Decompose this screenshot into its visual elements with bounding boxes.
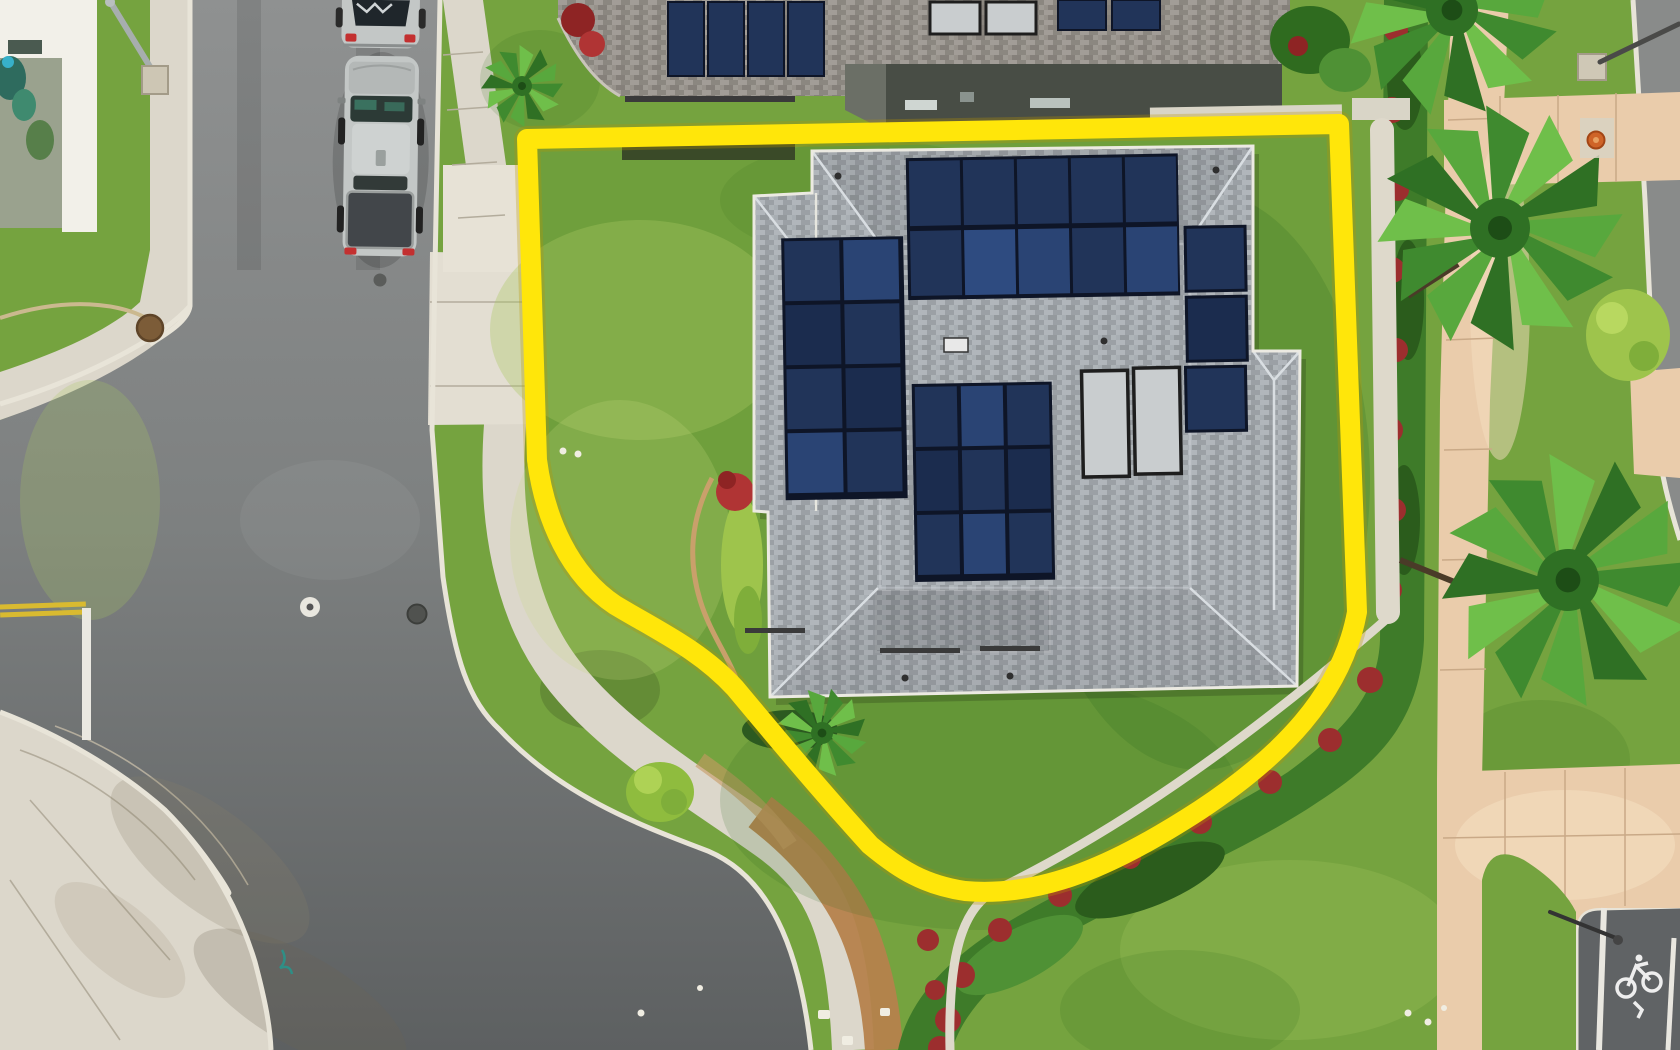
small-tree-east: [1629, 341, 1659, 371]
white-building: [0, 0, 97, 232]
red-ti-shrub: [718, 471, 736, 489]
lanai-window: [905, 100, 937, 110]
neighbor-trees: [1319, 48, 1371, 92]
parkway-bush: [634, 766, 662, 794]
sedan-taillight: [404, 34, 415, 42]
roof-bump-out: [876, 590, 1050, 652]
parked-vehicles: [331, 0, 431, 269]
parkway-bush: [626, 762, 694, 822]
tire-track: [237, 0, 261, 270]
truck-wheel: [338, 117, 345, 144]
sedan-wheel: [336, 7, 343, 27]
truck-wheel: [337, 205, 344, 232]
small-tree-east: [1596, 302, 1628, 334]
lanai-vent: [960, 92, 974, 102]
courtyard-feature: [2, 56, 14, 68]
solar-array-center: [915, 385, 1052, 575]
sedan: [335, 0, 426, 49]
solar-array-right: [1183, 226, 1249, 431]
aerial-photo: [0, 0, 1680, 1050]
manhole-dark: [408, 605, 427, 624]
parkway-bush: [661, 789, 687, 815]
sedan-wheel: [419, 9, 426, 29]
skylight: [944, 338, 968, 352]
windshield-glint: [354, 100, 376, 110]
chartreuse-hedge: [734, 586, 762, 654]
truck-wheel: [417, 119, 424, 146]
wall-east: [1382, 130, 1388, 612]
manhole-small: [374, 274, 387, 287]
fire-hydrant-cap: [1593, 137, 1599, 143]
truck-wheel: [416, 207, 423, 234]
sedan-taillight: [345, 34, 356, 42]
top-wall-corner: [1352, 98, 1410, 120]
building-window: [8, 40, 42, 54]
survey-marker-center: [307, 604, 314, 611]
sedan-rear-window: [352, 0, 410, 26]
driveway-east: [1630, 368, 1680, 478]
pole-base-pad: [142, 66, 168, 94]
red-shrub: [579, 31, 605, 57]
truck-taillight: [402, 248, 414, 255]
utility-pad: [443, 165, 525, 272]
neighbor-red-shrub: [1288, 36, 1308, 56]
manhole-rusty: [137, 315, 163, 341]
truck-cab-roof: [352, 124, 411, 175]
pole-base-pad-topright: [1578, 54, 1606, 80]
courtyard-plant: [12, 89, 36, 121]
streetlight-arm-head: [1613, 935, 1623, 945]
truck-mirror: [417, 99, 425, 105]
truck-bed-cover: [346, 192, 413, 249]
aerial-scene: [0, 0, 1680, 1050]
stop-bar: [82, 608, 91, 740]
truck-rear-window: [353, 176, 407, 191]
windshield-glint: [384, 102, 404, 111]
lanai-window: [1030, 98, 1070, 108]
small-tree-east: [1586, 289, 1670, 381]
truck-mirror: [338, 97, 346, 103]
asphalt-sheen: [240, 460, 420, 580]
pickup-truck: [335, 55, 426, 256]
courtyard-plant: [26, 120, 54, 160]
truck-taillight: [344, 248, 356, 255]
truck-sunroof: [376, 150, 386, 166]
